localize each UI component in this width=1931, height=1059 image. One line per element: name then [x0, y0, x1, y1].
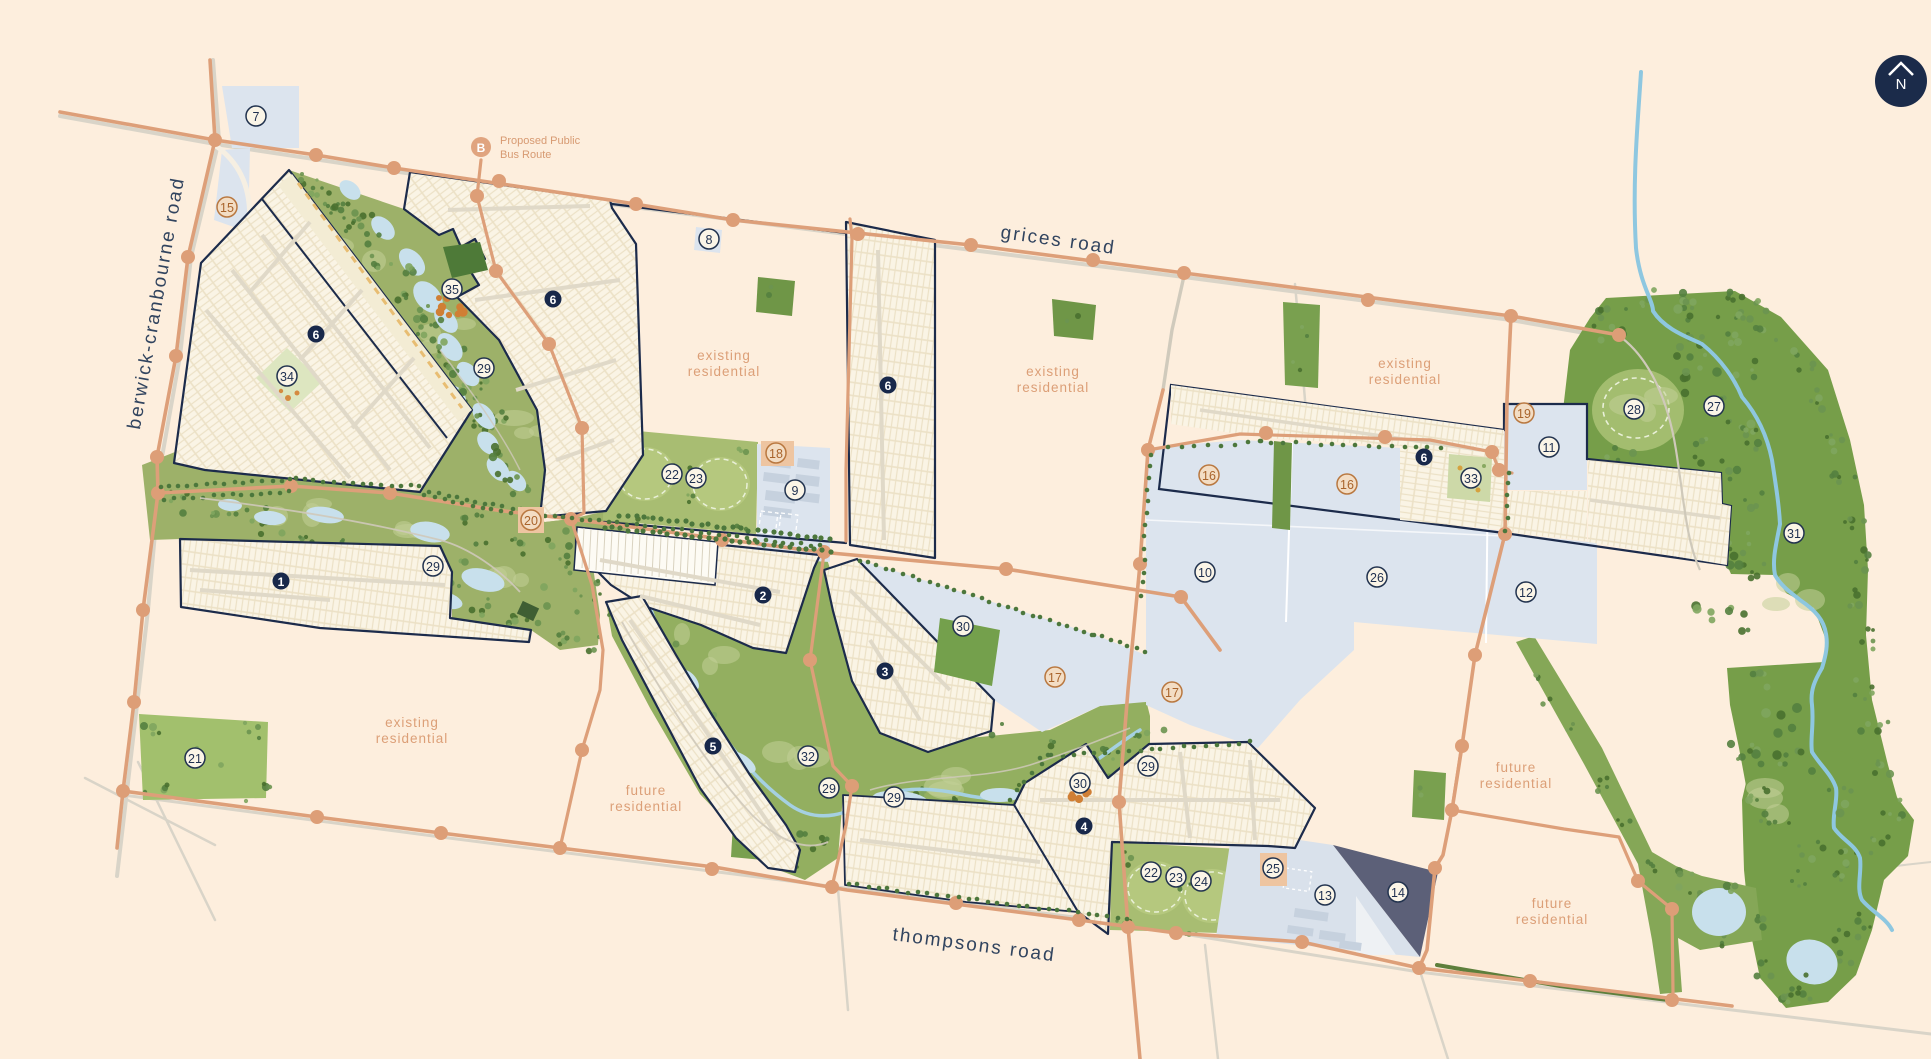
svg-text:12: 12: [1519, 586, 1533, 600]
svg-text:18: 18: [769, 447, 783, 461]
svg-text:25: 25: [1266, 862, 1280, 876]
svg-text:6: 6: [550, 293, 557, 307]
svg-text:7: 7: [253, 110, 260, 124]
svg-text:17: 17: [1048, 671, 1062, 685]
svg-text:22: 22: [1144, 866, 1158, 880]
svg-text:N: N: [1896, 76, 1907, 93]
svg-text:B: B: [477, 141, 486, 155]
svg-text:residential: residential: [1480, 776, 1553, 791]
svg-text:30: 30: [956, 620, 970, 634]
svg-text:4: 4: [1081, 820, 1088, 834]
svg-text:22: 22: [665, 468, 679, 482]
svg-text:Bus Route: Bus Route: [500, 149, 551, 161]
svg-text:34: 34: [280, 370, 294, 384]
svg-text:32: 32: [801, 750, 815, 764]
svg-text:residential: residential: [1369, 372, 1442, 387]
svg-text:23: 23: [689, 472, 703, 486]
svg-text:10: 10: [1198, 566, 1212, 580]
svg-text:residential: residential: [376, 731, 449, 746]
svg-text:residential: residential: [1017, 380, 1090, 395]
svg-text:29: 29: [426, 560, 440, 574]
svg-text:26: 26: [1370, 571, 1384, 585]
svg-text:20: 20: [524, 514, 538, 528]
svg-text:9: 9: [792, 484, 799, 498]
svg-text:6: 6: [1421, 451, 1428, 465]
svg-text:5: 5: [710, 740, 717, 754]
svg-text:19: 19: [1517, 407, 1531, 421]
svg-text:residential: residential: [1516, 912, 1589, 927]
svg-text:31: 31: [1787, 527, 1801, 541]
svg-text:3: 3: [882, 665, 889, 679]
svg-text:future: future: [1496, 760, 1537, 775]
svg-text:6: 6: [885, 379, 892, 393]
svg-text:existing: existing: [385, 715, 439, 730]
svg-text:30: 30: [1073, 777, 1087, 791]
svg-text:33: 33: [1464, 472, 1478, 486]
svg-text:16: 16: [1202, 469, 1216, 483]
svg-text:15: 15: [220, 201, 234, 215]
svg-text:29: 29: [477, 362, 491, 376]
svg-text:21: 21: [188, 752, 202, 766]
svg-text:17: 17: [1165, 686, 1179, 700]
svg-text:35: 35: [445, 283, 459, 297]
svg-text:1: 1: [278, 575, 285, 589]
svg-text:13: 13: [1318, 889, 1332, 903]
svg-text:24: 24: [1194, 875, 1208, 889]
svg-text:residential: residential: [610, 799, 683, 814]
svg-text:6: 6: [313, 328, 320, 342]
svg-text:future: future: [1532, 896, 1573, 911]
svg-text:Proposed Public: Proposed Public: [500, 135, 581, 147]
svg-text:27: 27: [1707, 400, 1721, 414]
svg-text:future: future: [626, 783, 667, 798]
svg-text:2: 2: [760, 589, 767, 603]
svg-text:29: 29: [887, 791, 901, 805]
svg-text:29: 29: [822, 782, 836, 796]
svg-text:existing: existing: [1378, 356, 1432, 371]
svg-text:8: 8: [706, 233, 713, 247]
svg-text:residential: residential: [688, 364, 761, 379]
svg-text:16: 16: [1340, 478, 1354, 492]
svg-text:11: 11: [1543, 441, 1556, 455]
svg-text:23: 23: [1169, 871, 1183, 885]
svg-text:29: 29: [1141, 760, 1155, 774]
svg-text:28: 28: [1627, 403, 1641, 417]
svg-text:existing: existing: [697, 348, 751, 363]
svg-text:14: 14: [1391, 886, 1405, 900]
svg-text:existing: existing: [1026, 364, 1080, 379]
